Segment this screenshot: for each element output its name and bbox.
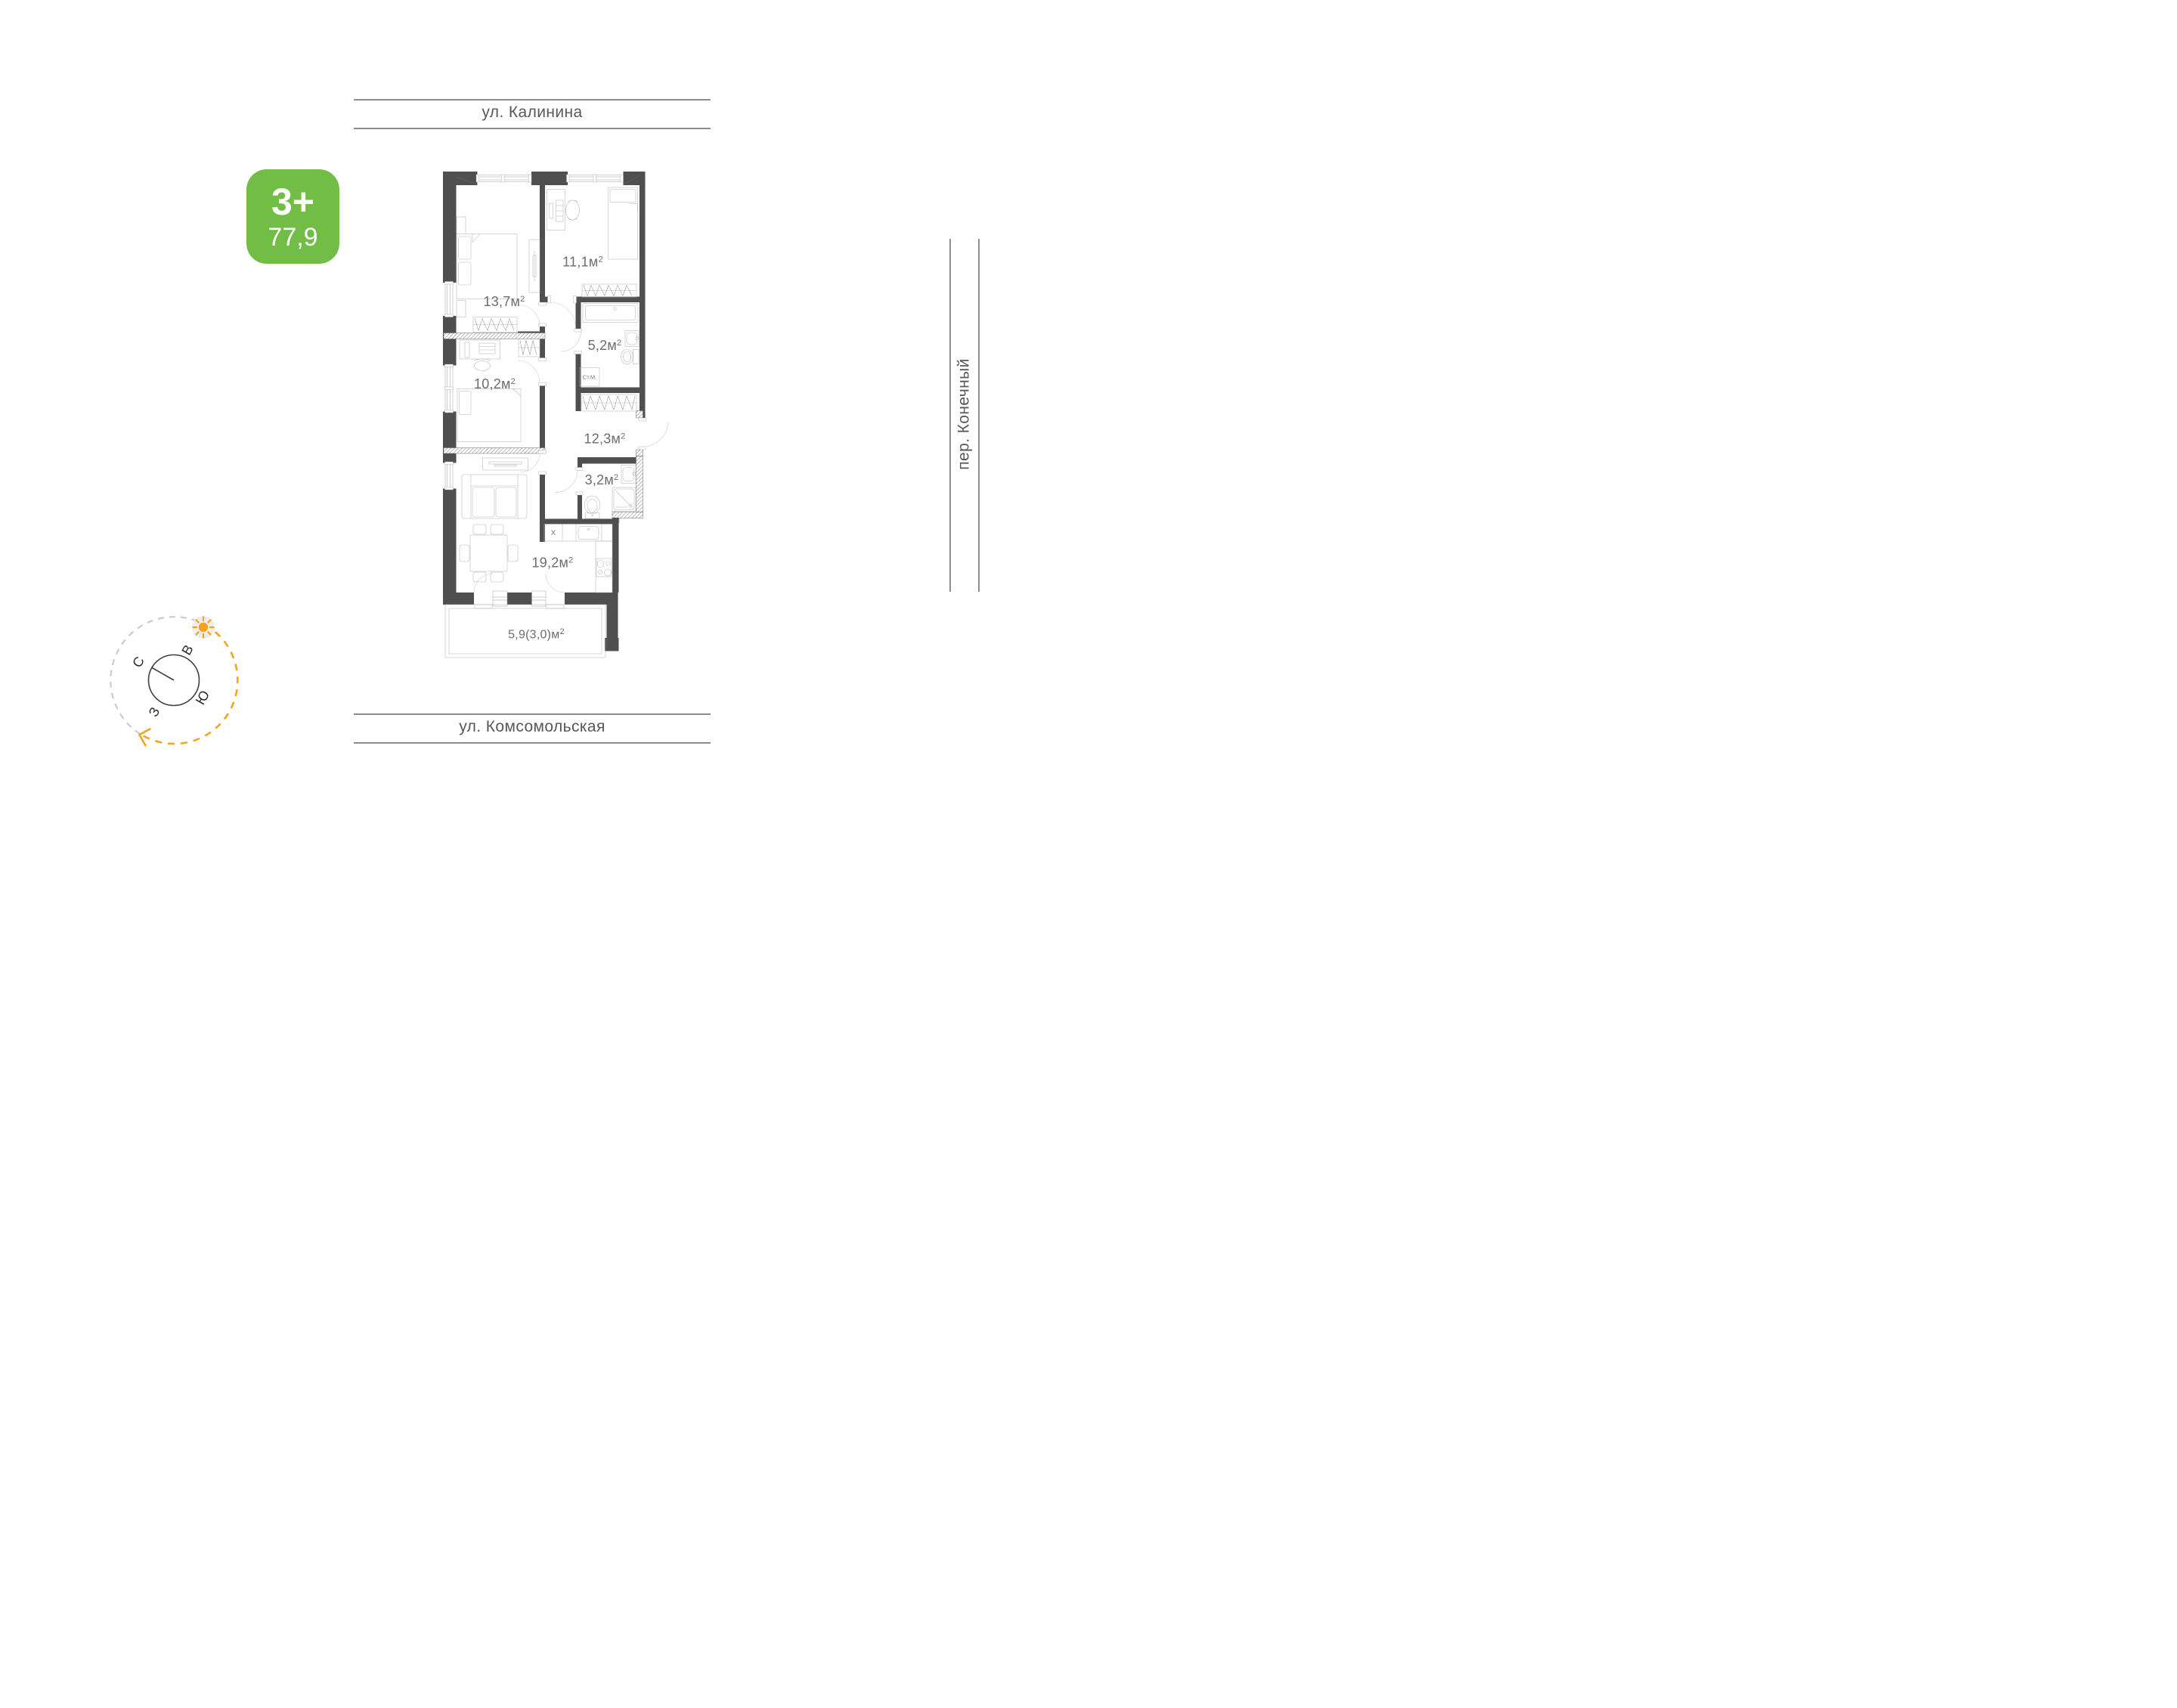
door-arc-bathroom xyxy=(561,332,581,352)
tv-console-icon xyxy=(483,458,528,470)
desk-icon xyxy=(460,340,500,359)
furniture-bedroom-2 xyxy=(547,187,638,297)
area-label-bathroom: 5,2м2 xyxy=(588,338,622,353)
window-left-2 xyxy=(445,364,454,413)
wardrobe-icon xyxy=(473,317,517,333)
washing-machine-label: Ст.М. xyxy=(583,374,596,381)
toilet-icon xyxy=(621,349,639,364)
fridge-label: X xyxy=(551,529,556,537)
street-right-line-inner xyxy=(949,239,951,592)
window-top-2 xyxy=(567,175,624,182)
area-label-bedroom-2: 11,1м2 xyxy=(562,255,603,270)
office-chair-icon xyxy=(474,359,491,371)
area-label-bedroom-3: 10,2м2 xyxy=(474,376,516,391)
door-arc-kitchen xyxy=(521,453,540,472)
compass-west-label: З xyxy=(146,704,163,719)
sun-icon xyxy=(192,616,215,639)
window-top-1 xyxy=(476,175,531,182)
furniture-hallway xyxy=(581,395,636,411)
door-arc-wc xyxy=(556,470,578,493)
area-label-bedroom-1: 13,7м2 xyxy=(483,294,525,309)
street-top-label: ул. Калинина xyxy=(354,104,711,122)
furniture-bedroom-1 xyxy=(457,217,540,333)
window-left-1 xyxy=(445,282,454,317)
double-bed-icon xyxy=(457,234,517,299)
washbasin-icon xyxy=(625,331,639,347)
compass-north-label: С xyxy=(129,654,147,670)
toilet-icon xyxy=(585,496,600,518)
door-arc-bedroom-1 xyxy=(519,305,540,326)
dresser-icon xyxy=(529,240,540,292)
area-label-kitchen-living: 19,2м2 xyxy=(531,555,573,571)
shower-tray-icon xyxy=(612,487,636,512)
street-bottom-line-upper xyxy=(354,713,711,715)
nightstand-icon xyxy=(457,301,466,317)
street-right-line-outer xyxy=(978,239,980,592)
wardrobe-icon xyxy=(519,339,540,357)
nightstand-icon xyxy=(457,217,466,234)
street-bottom-label: ул. Комсомольская xyxy=(354,718,711,736)
area-label-wc: 3,2м2 xyxy=(585,472,619,487)
single-bed-icon xyxy=(609,187,638,259)
area-label-hallway: 12,3м2 xyxy=(584,432,625,447)
window-left-3 xyxy=(445,462,454,490)
door-arc-bedroom-3 xyxy=(517,360,540,383)
street-bottom-line-lower xyxy=(354,742,711,744)
office-chair-icon xyxy=(566,200,580,220)
kitchen-sink-icon xyxy=(578,527,599,540)
wardrobe-icon xyxy=(581,395,636,411)
washing-machine-icon: Ст.М. xyxy=(580,368,599,387)
street-top-line-upper xyxy=(354,99,711,101)
door-arc-balcony-left xyxy=(474,574,493,593)
dining-table-icon xyxy=(460,524,518,582)
door-arc-entrance xyxy=(643,421,668,447)
compass-rose: С В Ю З xyxy=(106,609,249,753)
window-bottom-1 xyxy=(493,591,507,606)
desk-icon xyxy=(547,190,565,231)
single-bed-icon xyxy=(457,389,521,442)
bathtub-icon xyxy=(583,304,638,323)
wardrobe-icon xyxy=(582,284,636,297)
stove-icon xyxy=(596,559,612,577)
door-arc-bedroom-2 xyxy=(550,302,576,328)
badge-rooms-count: 3+ xyxy=(271,181,314,222)
street-top-line-lower xyxy=(354,128,711,129)
washbasin-icon xyxy=(621,466,636,484)
window-bottom-2 xyxy=(532,591,547,606)
floor-plan: Ст.М. xyxy=(443,172,677,663)
badge-total-area: 77,9 xyxy=(268,222,317,252)
sofa-icon xyxy=(462,475,527,518)
street-right-label: пер. Конечный xyxy=(955,238,974,591)
door-arc-balcony-right xyxy=(546,574,565,593)
apartment-type-badge: 3+ 77,9 xyxy=(246,169,339,264)
area-label-balcony: 5,9(3,0)м2 xyxy=(508,627,565,642)
